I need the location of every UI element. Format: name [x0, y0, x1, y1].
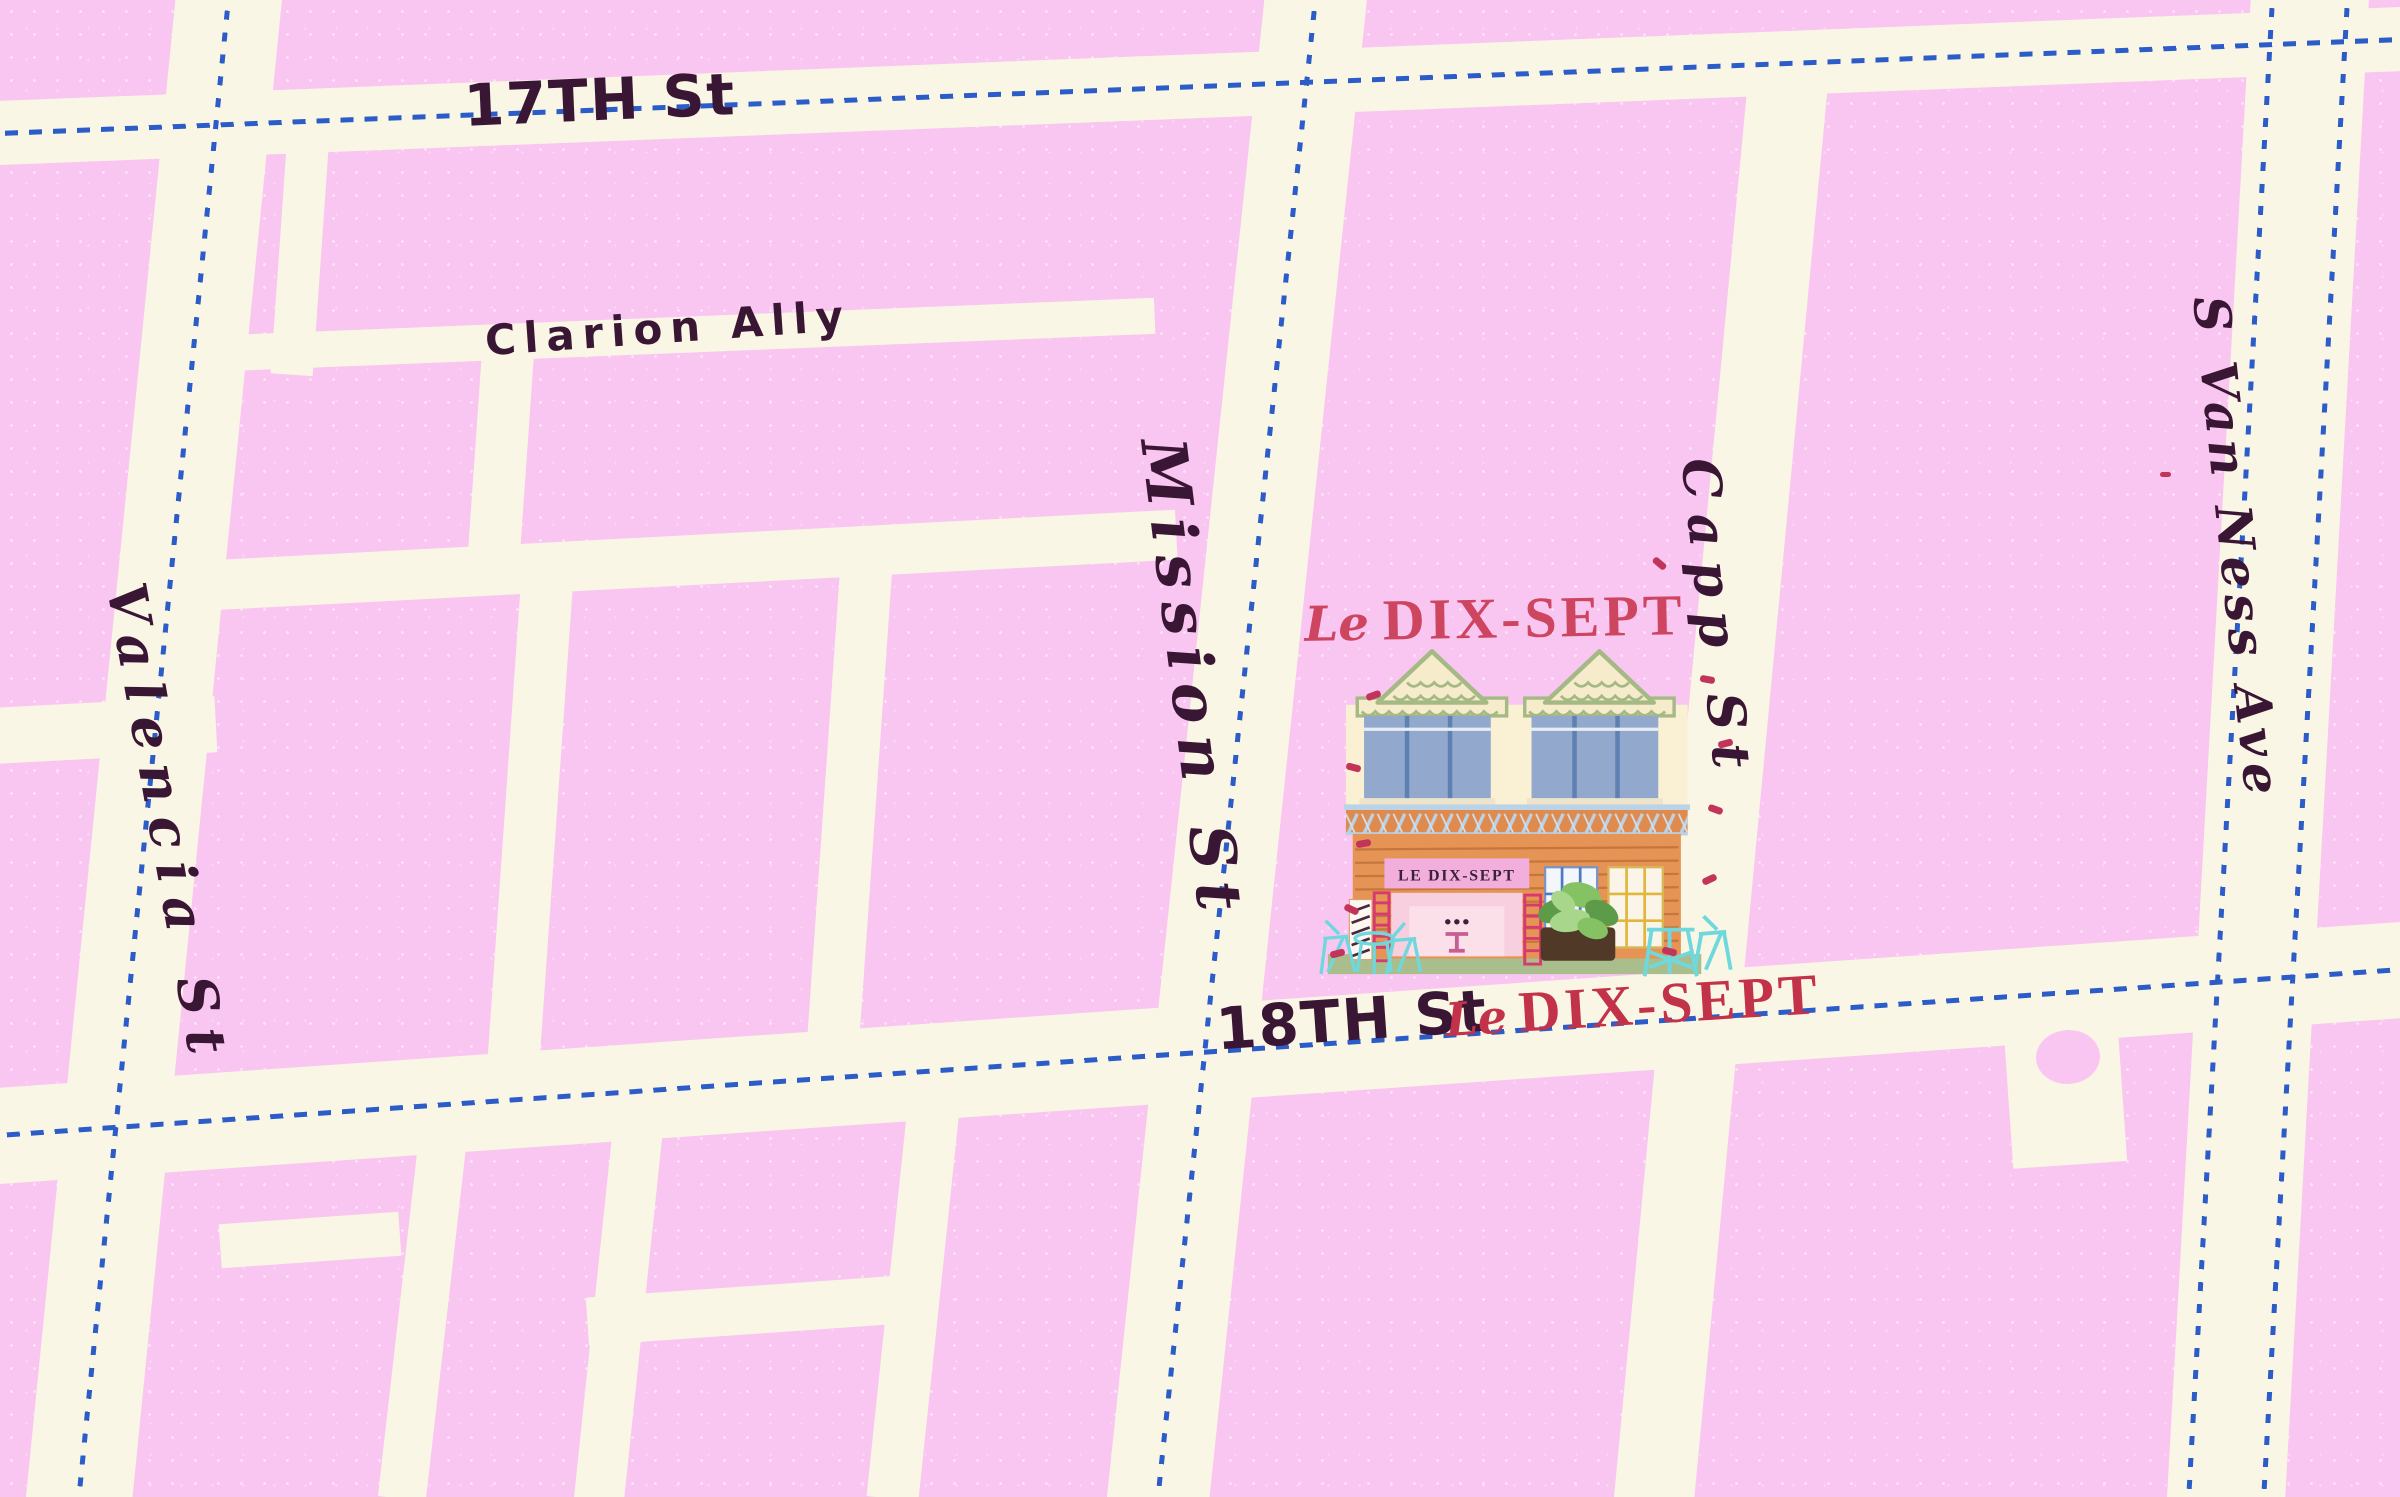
- label-17th-st: 17TH St: [462, 60, 737, 140]
- label-clarion-alley: Clarion Ally: [483, 291, 852, 365]
- building-sign-text: LE DIX-SEPT: [1398, 868, 1516, 885]
- confetti-mark: [2160, 472, 2171, 477]
- confetti-mark: [1652, 556, 1668, 571]
- poi-map-label-script: Le: [1444, 989, 1509, 1047]
- lane-mid-to-18th-east: [806, 539, 894, 1061]
- street-between-valencia-mission-band: [131, 510, 1177, 615]
- south-spur-lane-band: [219, 1212, 402, 1268]
- lane-mid-to-18th-west: [485, 554, 575, 1096]
- illustrated-neighborhood-map: 17TH St Clarion Ally Mission St Capp St …: [0, 0, 2400, 1497]
